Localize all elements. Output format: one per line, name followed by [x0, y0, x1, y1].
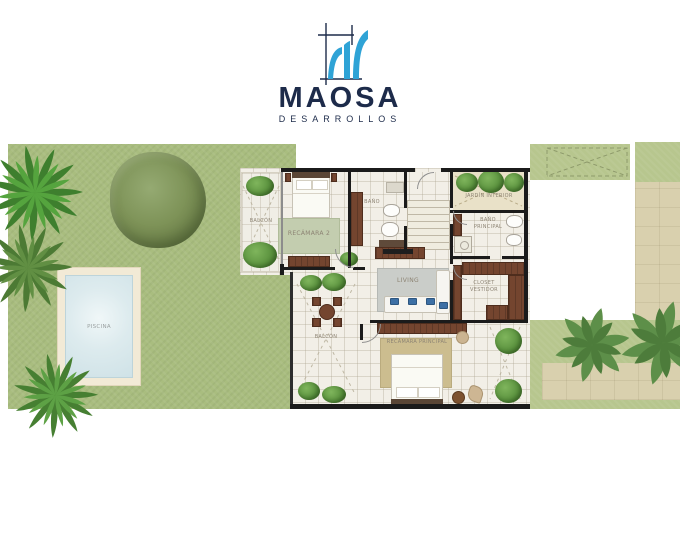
sofa-pillow [408, 298, 417, 305]
pouf [452, 391, 465, 404]
parking-pad-marks [546, 147, 628, 177]
fern-plant [0, 208, 88, 328]
bath-label: BAÑO [358, 199, 386, 206]
dresser-bedroom2 [288, 256, 330, 267]
master-bath-label: BAÑO PRINCIPAL [466, 217, 510, 230]
maosa-logo-icon [316, 23, 368, 85]
wall-closet-bottom [450, 320, 528, 323]
living-label: LIVING [386, 277, 430, 285]
wall-rightcol-a [450, 168, 453, 208]
shower [454, 236, 472, 253]
patio-chair [312, 297, 321, 306]
wall-balcony-lower-left [290, 272, 293, 404]
sofa-pillow [439, 302, 448, 309]
sofa-pillow [390, 298, 399, 305]
nightstand [331, 173, 337, 182]
closet-label: CLOSET VESTIDOR [462, 280, 506, 293]
tropical-leaves [618, 298, 680, 388]
patio-table [319, 304, 335, 320]
sink [383, 204, 400, 217]
nightstand [285, 173, 291, 182]
wall-living-bottom [370, 320, 450, 323]
bed-master [391, 354, 443, 404]
sofa-pillow [426, 298, 435, 305]
bed-duvet-fold [293, 193, 329, 194]
tv [383, 249, 413, 254]
bed-pillow [418, 387, 440, 398]
wall-below-bedroom2-b [353, 267, 365, 270]
floorplan-page: MAOSA DESARROLLOS PISCINA BALCÓN [0, 0, 680, 553]
master-label: RECÁMARA PRINCIPAL [385, 339, 449, 346]
wall-right [524, 168, 528, 323]
wall-bath-stairs2 [404, 226, 407, 250]
plant-bush [300, 275, 322, 291]
palm-plant [0, 338, 113, 453]
plant-bush [495, 379, 522, 403]
balcony-upper-label: BALCÓN [241, 218, 281, 225]
bed-headboard [292, 172, 330, 178]
bed-pillow [396, 387, 418, 398]
lawn-far-right [635, 142, 680, 182]
plant-bush [456, 173, 478, 192]
plant-bush [504, 173, 524, 192]
sink [506, 234, 522, 246]
wall-masterbath-closet-a [450, 256, 490, 259]
shower-drain [460, 241, 469, 250]
interior-garden-label: JARDÍN INTERIOR [464, 193, 514, 200]
bed-duvet-fold [392, 367, 442, 368]
bed-pillow [296, 180, 312, 190]
window-line-bedroom2 [281, 172, 283, 268]
bath-shelf [386, 182, 404, 193]
patio-chair [333, 297, 342, 306]
plant-bush [322, 386, 346, 403]
closet-cabinet-top [462, 262, 528, 275]
patio-chair [312, 318, 321, 327]
wall-bath-stairs [404, 168, 407, 208]
wall-rightcol-c [450, 280, 453, 323]
plant-bush [495, 328, 522, 354]
plant-bush [246, 176, 274, 196]
brand-tagline: DESARROLLOS [0, 114, 680, 124]
brand-name: MAOSA [0, 82, 680, 115]
plant-bush [243, 242, 277, 268]
wall-bottom [290, 404, 530, 409]
door-gap-entry [415, 168, 441, 172]
bed-pillow [312, 180, 328, 190]
closet-cabinet-bottom [486, 305, 508, 320]
bed-bedroom2 [292, 172, 330, 218]
plant-bush [322, 273, 346, 291]
tree [110, 152, 206, 248]
plant-bush [478, 170, 504, 193]
patio-chair [333, 318, 342, 327]
toilet [381, 222, 399, 237]
bedroom2-label: RECÁMARA 2 [278, 230, 340, 238]
wall-masterbath-closet-b [502, 256, 528, 259]
staircase [407, 200, 450, 250]
wall-below-bedroom2-a [283, 267, 335, 270]
balcony-lower-label: BALCÓN [304, 334, 348, 341]
house-plan: BALCÓN RECÁMARA 2 BAÑO [240, 168, 530, 409]
plant-bush [298, 382, 320, 400]
